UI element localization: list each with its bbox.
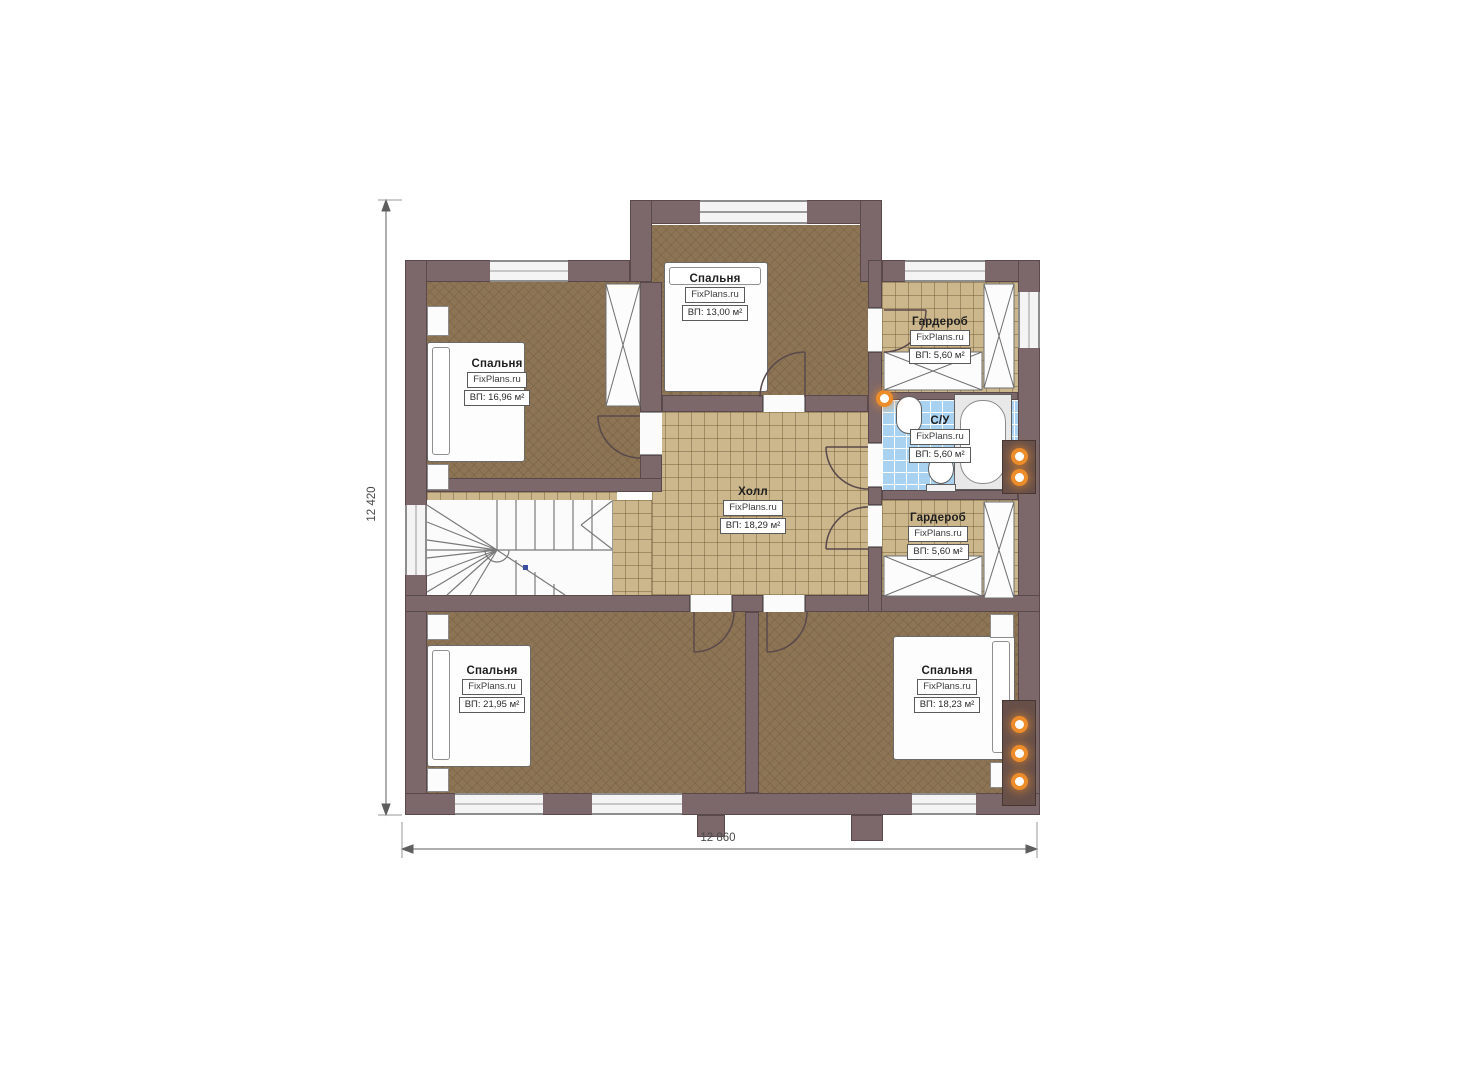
- nightstand: [427, 768, 449, 792]
- room-label-bedroom-bottom-right: Спальня FixPlans.ru ВП: 18,23 м²: [892, 665, 1002, 713]
- room-name: Гардероб: [912, 316, 968, 328]
- toilet-tank: [926, 484, 956, 492]
- room-name: Спальня: [921, 665, 972, 677]
- door-opening: [690, 595, 732, 612]
- room-label-bathroom: С/У FixPlans.ru ВП: 5,60 м²: [885, 415, 995, 463]
- room-name: Спальня: [689, 273, 740, 285]
- nightstand: [427, 464, 449, 490]
- wall: [732, 595, 763, 612]
- vent-box: [1002, 700, 1036, 806]
- window: [455, 793, 543, 815]
- room-area: ВП: 21,95 м²: [459, 697, 526, 713]
- room-name: Гардероб: [910, 512, 966, 524]
- window: [905, 260, 985, 282]
- door-opening: [868, 505, 882, 547]
- watermark: FixPlans.ru: [917, 679, 977, 695]
- wall: [640, 282, 662, 412]
- room-label-wardrobe-top: Гардероб FixPlans.ru ВП: 5,60 м²: [885, 316, 995, 364]
- wall: [805, 595, 1040, 612]
- room-area: ВП: 5,60 м²: [907, 544, 968, 560]
- watermark: FixPlans.ru: [467, 372, 527, 388]
- door-opening: [868, 308, 882, 352]
- room-area: ВП: 18,29 м²: [720, 518, 787, 534]
- vent-box: [1002, 440, 1036, 494]
- room-area: ВП: 18,23 м²: [914, 697, 981, 713]
- window: [1018, 292, 1040, 348]
- wall: [868, 547, 882, 612]
- watermark: FixPlans.ru: [910, 429, 970, 445]
- wall: [868, 487, 882, 505]
- watermark: FixPlans.ru: [723, 500, 783, 516]
- room-name: Спальня: [466, 665, 517, 677]
- door-opening: [640, 412, 662, 455]
- wall: [662, 395, 763, 412]
- window: [490, 260, 568, 282]
- room-label-hall: Холл FixPlans.ru ВП: 18,29 м²: [698, 486, 808, 534]
- vent-icon: [880, 394, 889, 403]
- wall: [868, 260, 882, 308]
- window: [700, 200, 807, 224]
- chimney-stub: [851, 815, 883, 841]
- door-opening: [763, 395, 805, 412]
- watermark: FixPlans.ru: [908, 526, 968, 542]
- window: [912, 793, 976, 815]
- room-name: Спальня: [471, 358, 522, 370]
- vent-single: [880, 394, 889, 403]
- dimension-height: 12 420: [366, 472, 378, 536]
- dimension-width: 12 860: [686, 832, 750, 844]
- nightstand: [427, 614, 449, 640]
- wall: [745, 612, 759, 793]
- floor-plan-page: Спальня FixPlans.ru ВП: 16,96 м² Спальня…: [0, 0, 1474, 1080]
- vent-icon: [1015, 452, 1024, 461]
- nightstand: [990, 614, 1014, 638]
- hall-floor-extension: [612, 500, 652, 595]
- vent-icon: [1015, 473, 1024, 482]
- room-area: ВП: 5,60 м²: [909, 348, 970, 364]
- room-name: Холл: [738, 486, 768, 498]
- staircase-area: [427, 500, 613, 595]
- room-name: С/У: [930, 415, 949, 427]
- room-area: ВП: 16,96 м²: [464, 390, 531, 406]
- window: [592, 793, 682, 815]
- room-label-bedroom-bottom-left: Спальня FixPlans.ru ВП: 21,95 м²: [437, 665, 547, 713]
- door-opening: [763, 595, 805, 612]
- watermark: FixPlans.ru: [910, 330, 970, 346]
- wall: [630, 200, 652, 282]
- wall: [427, 478, 662, 492]
- watermark: FixPlans.ru: [462, 679, 522, 695]
- room-label-wardrobe-bottom: Гардероб FixPlans.ru ВП: 5,60 м²: [883, 512, 993, 560]
- vent-icon: [1015, 749, 1024, 758]
- wall: [805, 395, 868, 412]
- landing-strip: [427, 492, 617, 500]
- window: [405, 505, 427, 575]
- room-area: ВП: 13,00 м²: [682, 305, 749, 321]
- wall: [405, 595, 690, 612]
- room-label-bedroom-top-left: Спальня FixPlans.ru ВП: 16,96 м²: [442, 358, 552, 406]
- vent-icon: [1015, 777, 1024, 786]
- watermark: FixPlans.ru: [685, 287, 745, 303]
- door-opening: [868, 443, 882, 487]
- room-area: ВП: 5,60 м²: [909, 447, 970, 463]
- room-label-bedroom-top: Спальня FixPlans.ru ВП: 13,00 м²: [660, 273, 770, 321]
- nightstand: [427, 306, 449, 336]
- vent-icon: [1015, 720, 1024, 729]
